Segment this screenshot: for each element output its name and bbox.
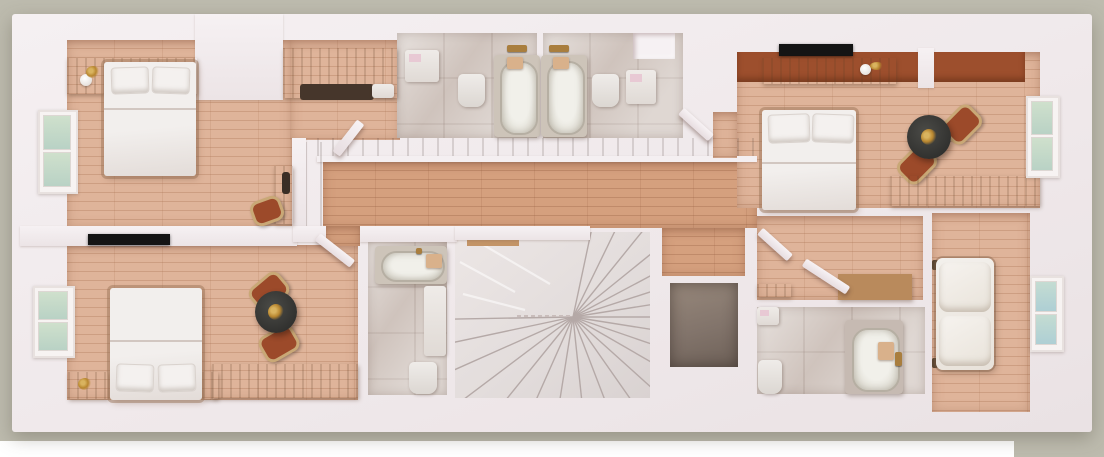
bathroom3-toilet — [409, 362, 437, 394]
lounge-sofa-cushion-top — [939, 262, 991, 312]
bedroom1-pillow-left — [111, 66, 150, 94]
bedroom1-bed — [104, 62, 196, 176]
bathroom1-brass-faucet — [507, 45, 527, 52]
bedroom3-window — [1026, 96, 1060, 178]
bathroom1-tub — [500, 61, 538, 135]
bedroom1-window-pane-top — [43, 115, 71, 150]
wall-top-left-jut — [195, 14, 283, 100]
bedroom1-wardrobe-box — [372, 84, 394, 98]
bedroom1-flower-sprig — [86, 66, 100, 78]
hallway-end-wall — [292, 138, 306, 228]
bedroom2-desk — [212, 364, 358, 398]
hallway-floor — [323, 162, 757, 228]
lounge-window-pane-top — [1035, 281, 1057, 312]
bathroom4-pink-towel — [760, 310, 769, 316]
lounge-sofa-cushion-bottom — [939, 316, 991, 366]
bedroom1-duvet-seam — [104, 108, 196, 110]
bathroom2-vanity-sink — [626, 70, 656, 104]
bathroom2-pink-towel — [630, 74, 642, 82]
bathroom4-tub — [852, 328, 900, 392]
bathroom4-sink — [757, 307, 779, 325]
bedroom3-wall-stub — [918, 48, 934, 88]
staircase — [455, 232, 650, 398]
bedroom2-window-pane-top — [38, 291, 68, 320]
bathroom1-pink-towel — [409, 54, 421, 62]
bedroom1-desk-decor — [282, 172, 290, 194]
utility-shaft-floor — [670, 283, 738, 367]
hallway-top-wall-cap — [317, 138, 757, 158]
bedroom1-window — [38, 110, 78, 194]
bedroom3-bed — [762, 110, 856, 210]
bedroom1-wardrobe-open-shelf — [300, 84, 374, 100]
stair-timber-threshold — [467, 240, 519, 246]
bedroom3-table-flowers — [921, 129, 937, 145]
bathroom4-bath-caddy — [878, 342, 894, 360]
bedroom3-wall-tv — [779, 44, 853, 56]
bedroom2-window — [33, 286, 75, 358]
bathroom3-bath-caddy — [426, 254, 442, 268]
bedroom3-gold-sprig — [870, 62, 884, 70]
bathroom3-vanity-cabinet — [424, 286, 446, 356]
bathroom4-gold-hand-shower — [895, 352, 902, 366]
bedroom2-window-pane-bottom — [38, 322, 68, 351]
bathroom1-vanity-sink — [405, 50, 439, 82]
bedroom1-pillow-right — [152, 66, 191, 94]
bathroom3-brass-faucet — [416, 248, 422, 254]
bedroom2-nightstand-decor — [78, 378, 92, 390]
bathroom4-toilet — [758, 360, 782, 394]
bedroom3-doorway-floor — [713, 112, 737, 158]
hallway-top-wall-face — [317, 156, 757, 162]
bedroom3-duvet-seam — [762, 162, 856, 164]
bathroom2-tub — [547, 61, 585, 135]
bathroom2-toilet — [592, 74, 619, 107]
lounge-daybed-sofa — [936, 258, 994, 370]
floor-plan-render — [0, 0, 1104, 457]
bedroom3-window-pane-top — [1031, 101, 1053, 135]
bedroom3-pillow-left — [768, 113, 811, 143]
hallway-end-wall-cap — [305, 142, 323, 228]
lounge-window — [1030, 276, 1064, 352]
hallway-bottom-wall-right — [360, 226, 457, 242]
bedroom3-pillow-right — [812, 113, 855, 143]
bedroom3-desk — [890, 176, 1040, 206]
bathroom1-bath-caddy — [507, 57, 523, 69]
bedroom2-bed — [110, 288, 202, 400]
bathroom2-storage-niche — [633, 33, 675, 59]
lounge-window-pane-bottom — [1035, 314, 1057, 345]
bathroom2-bath-caddy — [553, 57, 569, 69]
bedroom2-duvet-seam — [110, 340, 202, 342]
bedroom2-table-flowers — [268, 304, 284, 320]
bedroom2-pillow-right — [158, 363, 197, 392]
bathroom2-brass-faucet — [549, 45, 569, 52]
bedroom2-wall-tv — [88, 234, 170, 245]
backdrop-plane-corner — [1014, 441, 1104, 457]
bedroom3-window-pane-bottom — [1031, 137, 1053, 171]
bedroom2-pillow-left — [116, 363, 155, 392]
dressing-bench — [757, 284, 791, 297]
stairwell-top-wall — [455, 226, 590, 240]
hallway-extension-floor — [662, 228, 745, 276]
bedroom1-window-pane-bottom — [43, 152, 71, 187]
bathroom1-toilet — [458, 74, 485, 107]
